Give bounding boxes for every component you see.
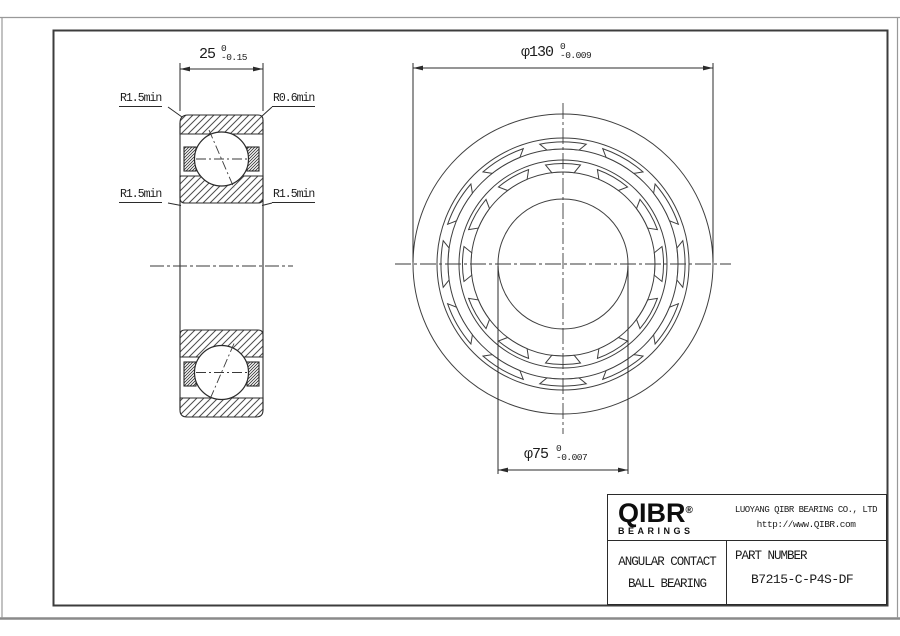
arrowhead xyxy=(413,66,423,71)
cage-pocket xyxy=(448,184,473,224)
radius-label-mid-right: R1.5min xyxy=(272,189,315,203)
outer-diameter-tolerance: 0 -0.009 xyxy=(560,42,591,60)
arrowhead xyxy=(180,67,190,72)
radius-label-top-right: R0.6min xyxy=(272,93,315,107)
company-name: LUOYANG QIBR BEARING CO., LTD xyxy=(735,505,877,515)
tolerance-lower: -0.007 xyxy=(556,453,587,462)
outer-ring-top-section xyxy=(180,115,263,134)
radius-label-mid-left: R1.5min xyxy=(119,189,162,203)
bore-diameter-value: φ75 xyxy=(524,447,548,462)
cage-pocket xyxy=(654,184,679,224)
title-block-header-row: QIBR® BEARINGS LUOYANG QIBR BEARING CO.,… xyxy=(608,495,886,541)
company-info: LUOYANG QIBR BEARING CO., LTD http://www… xyxy=(726,505,886,530)
outer-diameter-value: φ130 xyxy=(521,45,553,60)
width-dimension-value: 25 xyxy=(199,47,215,62)
company-website: http://www.QIBR.com xyxy=(757,519,856,530)
cage-pocket xyxy=(654,304,679,344)
radius-label-top-left: R1.5min xyxy=(119,93,162,107)
tolerance-lower: -0.009 xyxy=(560,51,591,60)
arrowhead xyxy=(253,67,263,72)
tolerance-lower: -0.15 xyxy=(221,53,247,62)
outer-ring-bottom-section xyxy=(180,398,263,417)
logo-wordmark: QIBR® xyxy=(618,500,726,526)
width-dimension xyxy=(180,63,263,111)
title-block-body-row: ANGULAR CONTACT BALL BEARING PART NUMBER… xyxy=(608,541,886,604)
product-name-line2: BALL BEARING xyxy=(628,577,706,591)
arrowhead xyxy=(703,66,713,71)
cage-pocket xyxy=(603,355,643,380)
company-logo: QIBR® BEARINGS xyxy=(608,500,726,536)
cage-pocket xyxy=(448,304,473,344)
part-number-value: B7215-C-P4S-DF xyxy=(751,572,886,587)
width-dimension-tolerance: 0 -0.15 xyxy=(221,44,247,62)
cage-pocket xyxy=(483,355,523,380)
part-number-label: PART NUMBER xyxy=(735,549,886,563)
cage-pocket xyxy=(603,149,643,174)
product-name-line1: ANGULAR CONTACT xyxy=(618,555,716,569)
title-block: QIBR® BEARINGS LUOYANG QIBR BEARING CO.,… xyxy=(607,494,887,605)
logo-subtext: BEARINGS xyxy=(618,526,726,536)
arrowhead xyxy=(618,468,628,473)
registered-trademark-icon: ® xyxy=(686,505,693,516)
part-number-cell: PART NUMBER B7215-C-P4S-DF xyxy=(727,541,886,604)
arrowhead xyxy=(498,468,508,473)
drawing-page: 25 0 -0.15 R1.5min R0.6min R1.5min R1.5m… xyxy=(0,0,900,636)
cage-pocket xyxy=(483,149,523,174)
bore-diameter-tolerance: 0 -0.007 xyxy=(556,444,587,462)
product-name-cell: ANGULAR CONTACT BALL BEARING xyxy=(608,541,727,604)
logo-text: QIBR xyxy=(618,498,686,528)
